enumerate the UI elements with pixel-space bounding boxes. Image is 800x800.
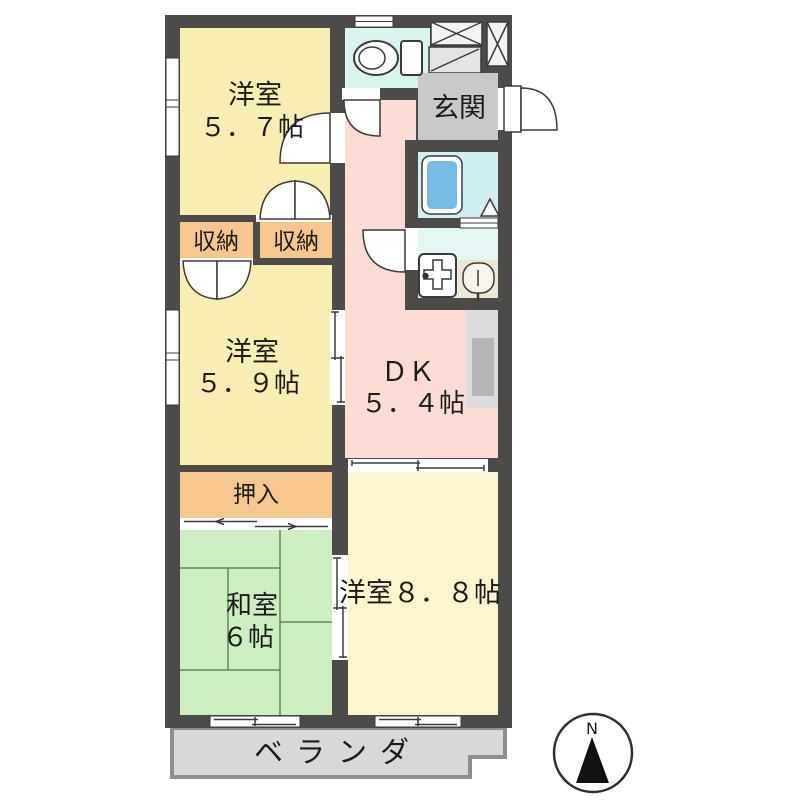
label-dk-size: ５．４帖: [361, 389, 465, 419]
sliding-door-western59-dk: [330, 310, 345, 405]
entrance-door-leaf: [504, 86, 521, 132]
label-oshiire: 押入: [233, 482, 279, 508]
compass-north-label: N: [586, 719, 598, 738]
toilet-icon: [354, 41, 422, 75]
label-western59-name: 洋室: [225, 337, 279, 368]
washing-machine-pan-icon: [419, 254, 456, 297]
kitchen-counter-sink: [472, 338, 494, 396]
compass: N: [554, 714, 632, 792]
label-closet-left: 収納: [193, 229, 239, 255]
label-dk-name: ＤＫ: [381, 357, 435, 388]
window-left-western57: [166, 58, 179, 156]
window-japanese-veranda: [210, 716, 300, 727]
opening-toilet-door: [342, 88, 380, 100]
label-western88: 洋室８．８帖: [339, 578, 501, 609]
washbasin-icon: [458, 260, 498, 301]
opening-bath-washroom: [460, 218, 498, 228]
label-western57-name: 洋室: [228, 80, 282, 111]
label-japanese-size: ６帖: [222, 623, 274, 653]
window-western88-veranda: [375, 716, 461, 727]
label-closet-right: 収納: [273, 229, 319, 255]
opening-western57-door: [330, 113, 345, 163]
window-left-western59: [166, 310, 179, 405]
window-toilet-top: [355, 16, 393, 27]
bathtub-icon: [422, 156, 462, 214]
label-western59-size: ５．９帖: [196, 369, 300, 399]
sliding-door-dk-western88: [348, 459, 488, 472]
label-japanese-name: 和室: [226, 591, 278, 621]
label-entrance: 玄関: [432, 93, 486, 124]
label-veranda: ベランダ: [254, 735, 422, 769]
floorplan-page: 洋室 ５．７帖 収納 収納 玄関 洋室 ５．９帖 ＤＫ ５．４帖 押入 和室 ６…: [0, 0, 800, 800]
sliding-door-oshiire: [180, 518, 332, 530]
opening-washroom-door: [405, 228, 418, 270]
label-western57-size: ５．７帖: [200, 113, 304, 143]
floorplan-drawing: 洋室 ５．７帖 収納 収納 玄関 洋室 ５．９帖 ＤＫ ５．４帖 押入 和室 ６…: [0, 0, 800, 800]
